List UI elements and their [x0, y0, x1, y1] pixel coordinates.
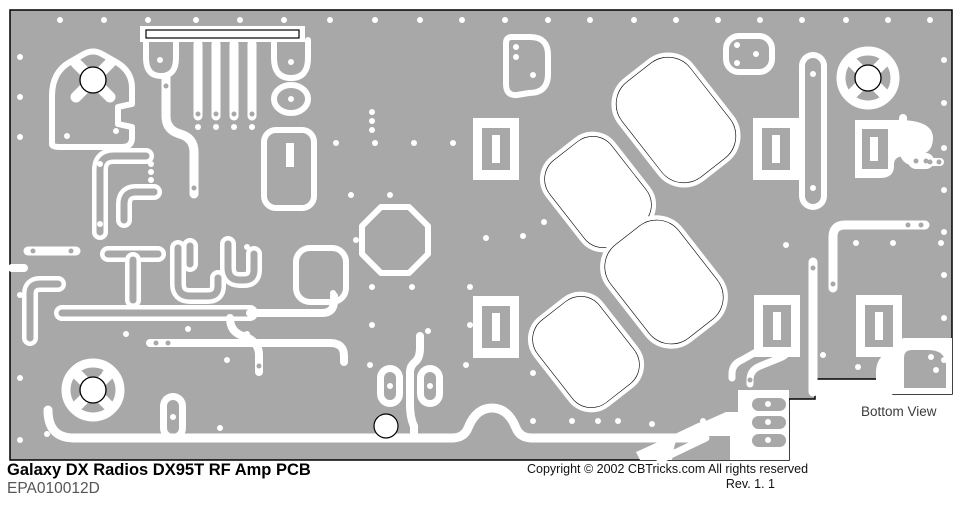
- via-dot: [941, 57, 947, 63]
- via-dot: [757, 17, 763, 23]
- part-number: EPA010012D: [7, 480, 100, 497]
- via-dot: [734, 42, 740, 48]
- via-dot: [569, 418, 575, 424]
- via-dot: [673, 17, 679, 23]
- via-dot: [631, 17, 637, 23]
- via-dot: [820, 352, 826, 358]
- via-dot: [890, 240, 896, 246]
- via-dot: [102, 370, 108, 376]
- via-dot: [367, 362, 373, 368]
- via-dot: [483, 235, 489, 241]
- via-dot: [372, 140, 378, 146]
- via-dot: [123, 331, 129, 337]
- via-dot: [330, 290, 336, 296]
- via-dot: [853, 240, 859, 246]
- via-dot: [17, 292, 23, 298]
- hole-dot: [748, 378, 753, 383]
- via-dot: [530, 418, 536, 424]
- via-dot: [765, 401, 771, 407]
- via-dot: [57, 17, 63, 23]
- hole-dot: [906, 223, 911, 228]
- via-dot: [467, 322, 473, 328]
- via-dot: [467, 284, 473, 290]
- center-hole: [80, 377, 106, 403]
- via-dot: [17, 134, 23, 140]
- via-dot: [941, 272, 947, 278]
- hole-dot: [196, 112, 201, 117]
- hole-dot: [919, 223, 924, 228]
- via-dot: [843, 17, 849, 23]
- pcb-artwork-page: Bottom View Galaxy DX Radios DX95T RF Am…: [0, 0, 963, 508]
- via-dot: [513, 44, 519, 50]
- via-dot: [411, 140, 417, 146]
- via-dot: [64, 133, 70, 139]
- hole-dot: [250, 112, 255, 117]
- via-dot: [195, 124, 201, 130]
- via-dot: [17, 437, 23, 443]
- via-dot: [369, 322, 375, 328]
- via-dot: [213, 124, 219, 130]
- hole-dot: [69, 249, 74, 254]
- slot-mark: [875, 312, 883, 340]
- via-dot: [885, 17, 891, 23]
- via-dot: [101, 17, 107, 23]
- via-dot: [327, 17, 333, 23]
- via-dot: [244, 244, 250, 250]
- via-dot: [427, 383, 433, 389]
- via-dot: [193, 17, 199, 23]
- plated-hole: [374, 414, 398, 438]
- pcb-layout-figure: Bottom View Galaxy DX Radios DX95T RF Am…: [0, 0, 963, 508]
- via-dot: [17, 375, 23, 381]
- board-title: Galaxy DX Radios DX95T RF Amp PCB: [7, 461, 311, 479]
- center-hole: [855, 65, 881, 91]
- via-dot: [244, 331, 250, 337]
- via-dot: [855, 364, 861, 370]
- via-dot: [353, 237, 359, 243]
- via-dot: [545, 17, 551, 23]
- hole-dot: [192, 186, 197, 191]
- via-dot: [369, 118, 375, 124]
- via-dot: [17, 54, 23, 60]
- via-dot: [409, 284, 415, 290]
- via-dot: [372, 17, 378, 23]
- via-dot: [927, 17, 933, 23]
- via-dot: [348, 192, 354, 198]
- via-dot: [459, 17, 465, 23]
- hole-dot: [166, 341, 171, 346]
- corner-hook-pad: [904, 350, 946, 388]
- copyright-line: Copyright © 2002 CBTricks.com All rights…: [527, 462, 808, 476]
- via-dot: [615, 418, 621, 424]
- via-dot: [513, 54, 519, 60]
- via-dot: [97, 161, 103, 167]
- via-dot: [587, 17, 593, 23]
- hole-dot: [928, 160, 933, 165]
- slot-mark: [773, 312, 781, 340]
- view-label: Bottom View: [861, 404, 937, 419]
- slot-mark: [286, 143, 294, 167]
- via-dot: [224, 357, 230, 363]
- hole-dot: [937, 160, 942, 165]
- via-dot: [148, 161, 154, 167]
- transistor-pad-top-left: [52, 52, 132, 148]
- hole-dot: [811, 266, 816, 271]
- via-dot: [417, 17, 423, 23]
- via-dot: [810, 185, 816, 191]
- via-dot: [649, 421, 655, 427]
- via-dot: [541, 219, 547, 225]
- via-dot: [530, 370, 536, 376]
- slot-mark: [772, 135, 780, 163]
- via-dot: [734, 60, 740, 66]
- via-dot: [941, 145, 947, 151]
- slot-mark: [492, 135, 500, 163]
- via-dot: [799, 17, 805, 23]
- via-dot: [765, 419, 771, 425]
- hole-dot: [154, 341, 159, 346]
- via-dot: [530, 72, 536, 78]
- hole-dot: [31, 249, 36, 254]
- via-dot: [288, 96, 294, 102]
- hole-dot: [831, 282, 836, 287]
- via-dot: [595, 418, 601, 424]
- via-dot: [44, 431, 50, 437]
- via-dot: [217, 425, 223, 431]
- via-dot: [941, 100, 947, 106]
- via-dot: [941, 315, 947, 321]
- via-dot: [369, 127, 375, 133]
- via-dot: [145, 17, 151, 23]
- via-dot: [281, 17, 287, 23]
- via-dot: [288, 59, 294, 65]
- via-dot: [148, 169, 154, 175]
- via-dot: [148, 177, 154, 183]
- via-dot: [941, 229, 947, 235]
- via-dot: [933, 367, 939, 373]
- via-dot: [941, 187, 947, 193]
- via-dot: [450, 140, 456, 146]
- via-dot: [113, 128, 119, 134]
- hole-dot: [232, 112, 237, 117]
- via-dot: [97, 221, 103, 227]
- via-dot: [170, 414, 176, 420]
- via-dot: [783, 242, 789, 248]
- via-dot: [425, 328, 431, 334]
- via-dot: [157, 57, 163, 63]
- via-dot: [237, 17, 243, 23]
- via-dot: [369, 284, 375, 290]
- via-dot: [231, 124, 237, 130]
- hole-dot: [164, 84, 169, 89]
- slot-mark: [492, 313, 500, 341]
- hole-dot: [914, 159, 919, 164]
- via-dot: [941, 357, 947, 363]
- via-dot: [387, 383, 393, 389]
- via-dot: [753, 51, 759, 57]
- via-dot: [715, 17, 721, 23]
- via-dot: [938, 240, 944, 246]
- via-dot: [520, 233, 526, 239]
- via-dot: [502, 17, 508, 23]
- slot-mark: [870, 137, 878, 161]
- via-dot: [463, 362, 469, 368]
- revision-label: Rev. 1. 1: [726, 477, 775, 491]
- hole-dot: [214, 112, 219, 117]
- via-dot: [369, 109, 375, 115]
- via-dot: [249, 124, 255, 130]
- via-dot: [700, 418, 706, 424]
- via-dot: [17, 94, 23, 100]
- via-dot: [333, 140, 339, 146]
- via-dot: [928, 354, 934, 360]
- hole-dot: [257, 364, 262, 369]
- via-dot: [765, 437, 771, 443]
- via-dot: [810, 71, 816, 77]
- via-dot: [185, 326, 191, 332]
- via-dot: [387, 192, 393, 198]
- center-hole: [80, 67, 106, 93]
